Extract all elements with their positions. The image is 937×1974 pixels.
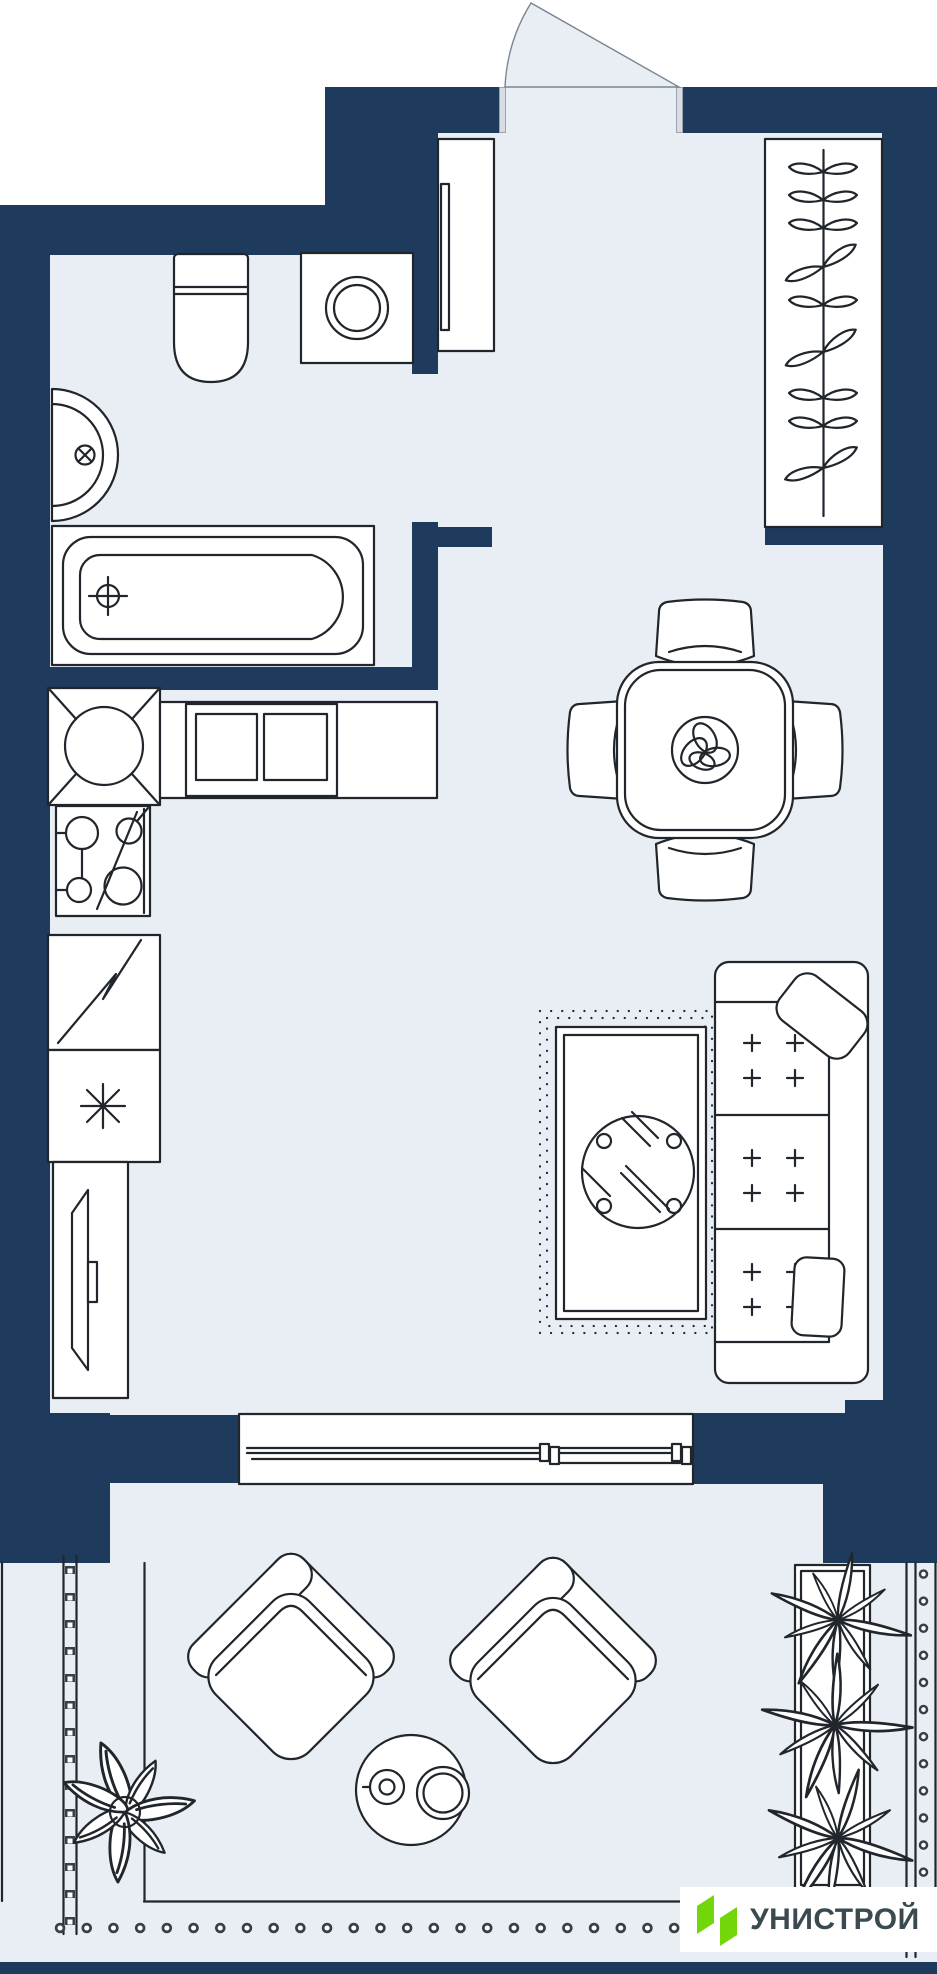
railing-left (64, 1556, 77, 1934)
brand-logo-text: УНИСТРОЙ (750, 1903, 920, 1937)
floorplan-canvas: УНИСТРОЙ (0, 0, 937, 1974)
kitchen-corner-unit-icon (48, 688, 160, 805)
brand-logo-icon (695, 1893, 739, 1947)
cooktop-icon (56, 806, 150, 916)
washing-machine-icon (301, 253, 413, 363)
corner-sink-icon (52, 389, 118, 521)
wardrobe-icon (765, 139, 882, 527)
potted-plant-icon (61, 1739, 195, 1883)
tv-stand-icon (53, 1162, 128, 1398)
refrigerator-snowflake-icon (48, 1050, 160, 1162)
entry-door-swing-icon (505, 3, 679, 87)
hall-cabinet-icon (438, 139, 494, 351)
plan-drawing (0, 0, 937, 1974)
brand-logo: УНИСТРОЙ (680, 1887, 937, 1952)
pillow-icon (791, 1257, 845, 1338)
armchair-icon (441, 1550, 664, 1773)
bathtub-icon (52, 526, 374, 665)
dining-set (568, 600, 843, 901)
kitchen-counter-icon (160, 702, 437, 798)
toilet-icon (174, 254, 248, 382)
sofa-icon (715, 962, 874, 1383)
dining-table-icon (617, 662, 793, 838)
side-table-icon (356, 1735, 469, 1845)
planter-plant-icon (761, 1654, 912, 1799)
armchair-icon (179, 1546, 402, 1769)
appliance-zigzag-icon (48, 935, 160, 1050)
balcony-door-icon (239, 1414, 693, 1484)
planter-box-icon (761, 1552, 913, 1906)
